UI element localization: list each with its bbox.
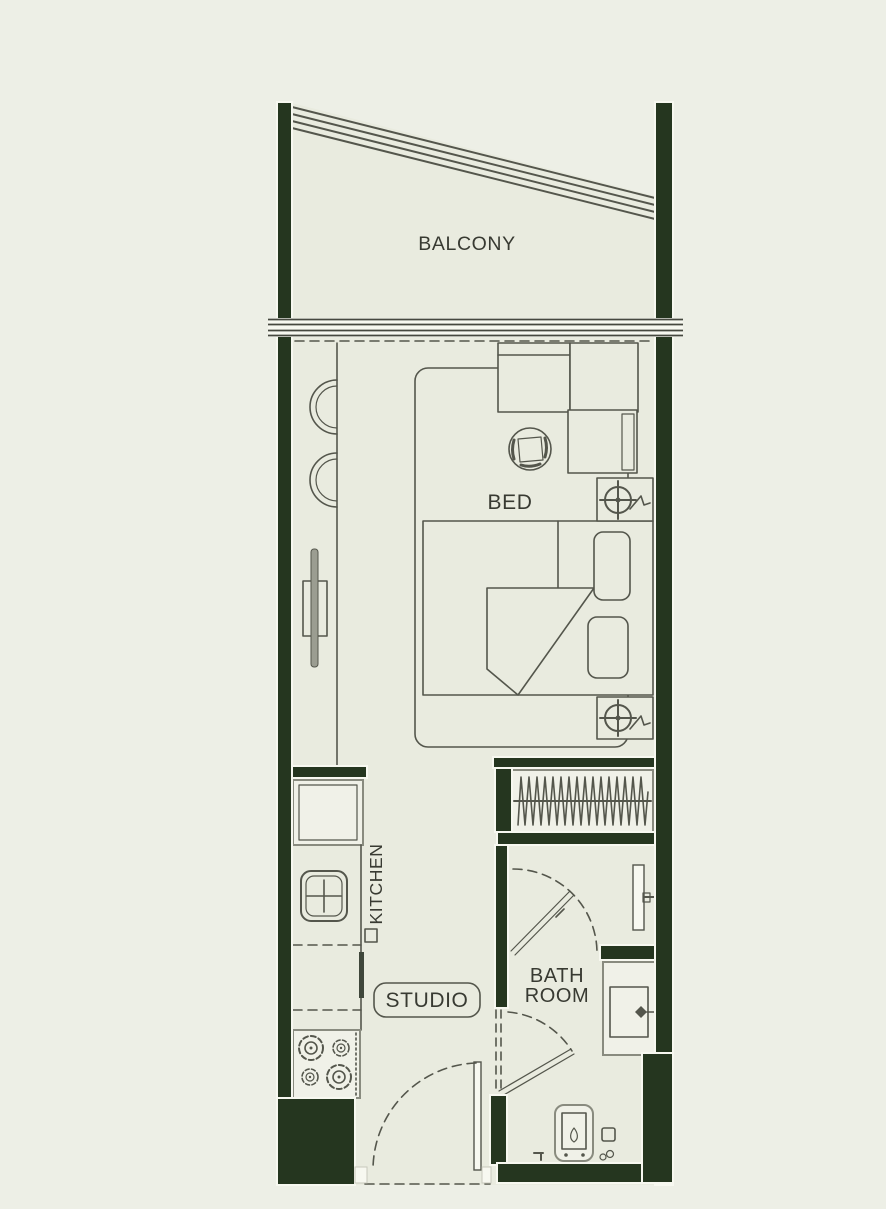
fridge [293,780,363,845]
right-wall [655,102,673,1185]
door-jamb [482,1167,491,1183]
wardrobe-hanging-rail [512,770,653,832]
pillow [594,532,630,600]
left-wall [277,102,292,1185]
svg-text:STUDIO: STUDIO [386,989,469,1012]
pillow [588,617,628,678]
floor-plan-page: BALCONY BED KITCHEN STUDIO BATH ROOM [0,0,886,1209]
bathroom-bottom-wall [497,1163,642,1183]
kitchen-top-wall [292,766,367,778]
svg-text:ROOM: ROOM [525,985,590,1007]
bed [423,521,653,695]
ceiling-fixture-icon [597,478,653,521]
balcony-window [268,318,683,337]
bathroom-left-wall-lower [490,1095,507,1165]
toilet [555,1105,593,1161]
wardrobe-left-wall [495,768,512,832]
right-wall-lower-thick [642,1053,673,1183]
armchair [568,410,637,473]
bathroom-top-wall [497,832,655,845]
studio-label: STUDIO [374,983,480,1017]
bathroom-left-wall-upper [495,845,508,1008]
shower-partition-wall [600,945,655,960]
vanity-sink [603,962,655,1055]
stove [293,1030,360,1098]
wardrobe-top-wall [493,757,655,768]
balcony-label: BALCONY [418,233,515,255]
ceiling-fixture-icon [597,697,653,739]
bathroom-label: BATH ROOM [525,965,590,1007]
floor-plan-svg: BALCONY BED KITCHEN STUDIO BATH ROOM [0,0,886,1209]
svg-text:KITCHEN: KITCHEN [366,843,386,924]
sofa [498,343,638,412]
counter-edge-mark [359,952,364,998]
entry-door-leaf [474,1062,481,1170]
round-chair [509,428,551,470]
bed-label: BED [488,491,533,514]
kitchen-bottom-wall [277,1098,355,1185]
svg-text:BATH: BATH [530,965,584,987]
door-jamb [355,1167,367,1183]
